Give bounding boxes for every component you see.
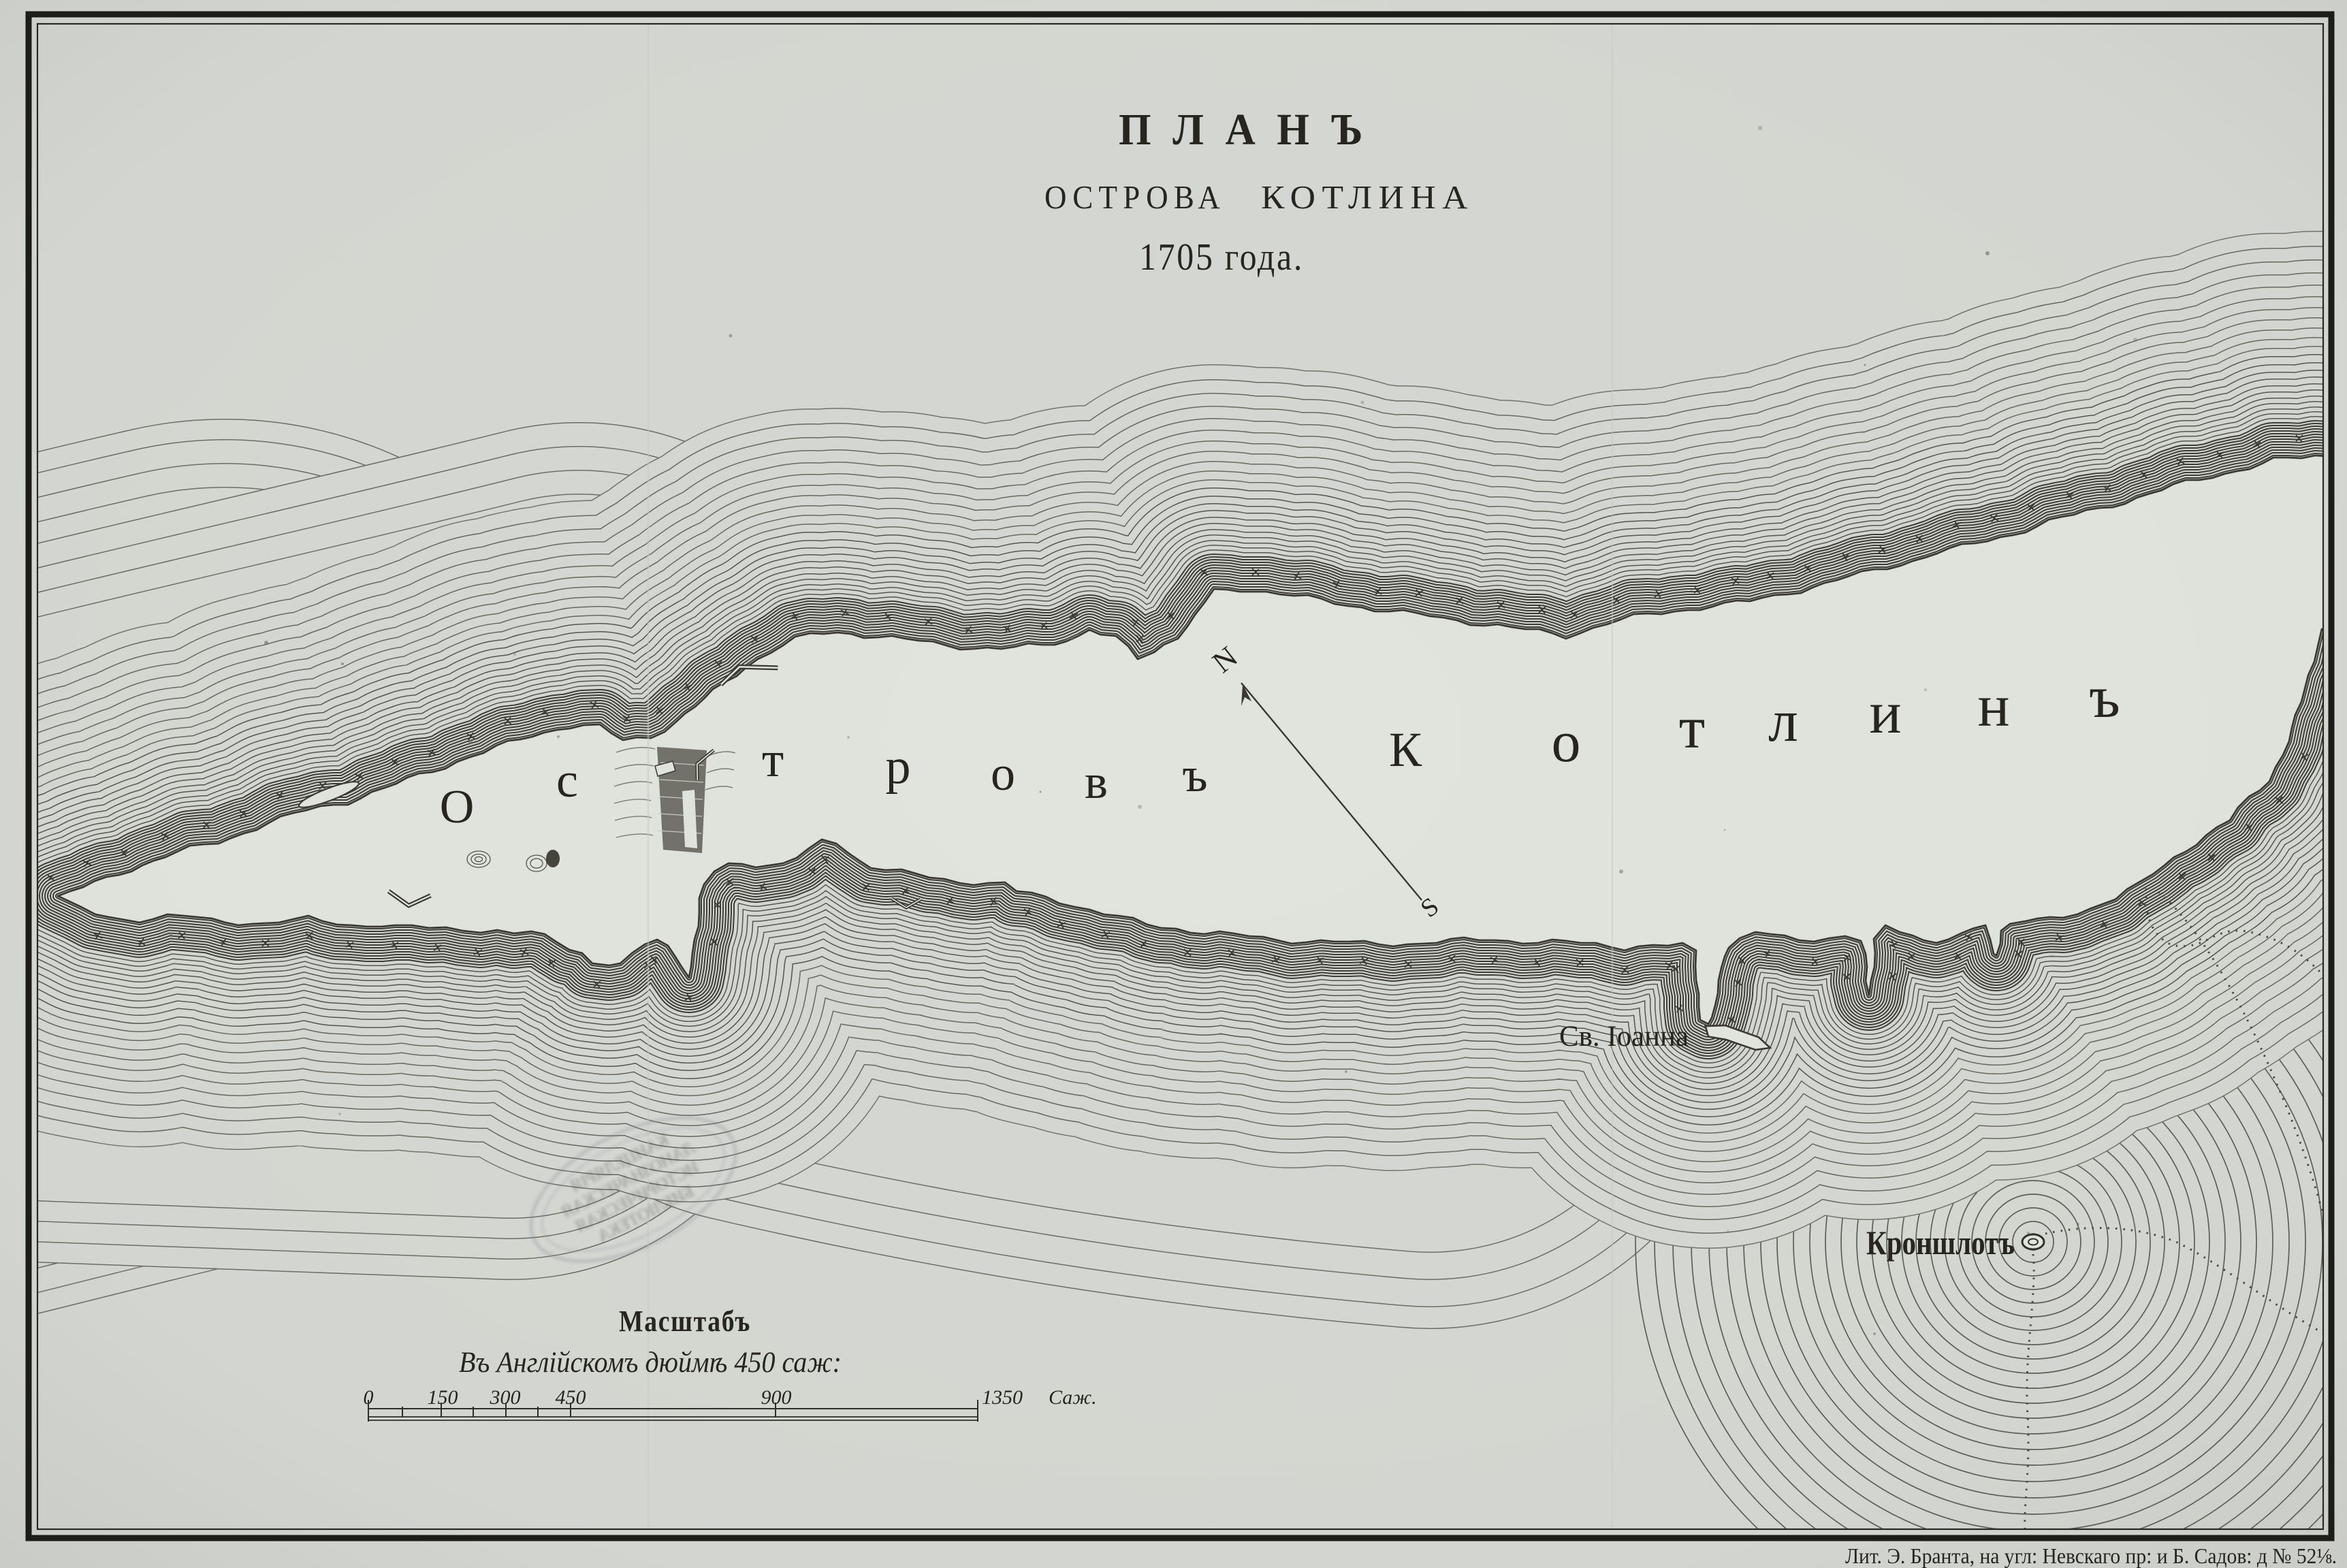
svg-text:ъ: ъ	[2089, 665, 2120, 731]
svg-text:1350: 1350	[982, 1386, 1023, 1409]
svg-text:Св. Іоанна: Св. Іоанна	[1559, 1021, 1689, 1053]
svg-text:Лит. Э. Бранта, на угл: Невска: Лит. Э. Бранта, на угл: Невскаго пр: и Б…	[1845, 1543, 2337, 1568]
svg-text:в: в	[1085, 754, 1108, 809]
svg-text:150: 150	[428, 1386, 458, 1409]
svg-text:и: и	[1869, 680, 1901, 746]
svg-text:с: с	[556, 753, 578, 807]
svg-text:Кроншлотъ: Кроншлотъ	[1866, 1223, 2015, 1262]
svg-text:1705 года.: 1705 года.	[1139, 236, 1304, 278]
svg-text:ъ: ъ	[1182, 748, 1207, 802]
svg-text:ОСТРОВА: ОСТРОВА	[1044, 178, 1226, 216]
svg-text:О: О	[440, 781, 475, 833]
svg-text:н: н	[1977, 673, 2009, 739]
svg-text:о: о	[1552, 709, 1581, 774]
svg-text:т: т	[1679, 695, 1705, 761]
svg-text:о: о	[991, 746, 1015, 801]
svg-text:т: т	[762, 732, 784, 788]
svg-text:Въ Англійскомъ дюймѣ 450 саж:: Въ Англійскомъ дюймѣ 450 саж:	[459, 1347, 842, 1379]
svg-text:КОТЛИНА: КОТЛИНА	[1261, 178, 1474, 216]
svg-text:р: р	[886, 739, 911, 795]
svg-text:К: К	[1389, 722, 1422, 777]
svg-text:Саж.: Саж.	[1049, 1386, 1097, 1409]
svg-text:300: 300	[490, 1386, 521, 1409]
svg-text:ПЛАНЪ: ПЛАНЪ	[1119, 105, 1384, 155]
svg-text:л: л	[1768, 688, 1798, 754]
svg-text:Масштабъ: Масштабъ	[619, 1305, 751, 1338]
